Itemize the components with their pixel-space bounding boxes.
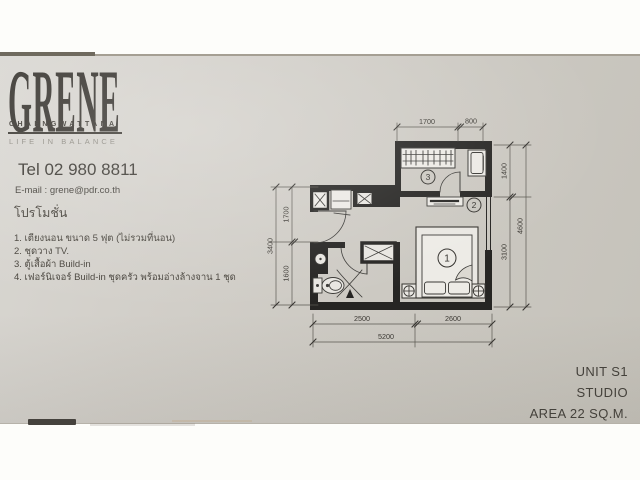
promotion-item-2: 2. ชุดวาง TV. [14,245,264,258]
phone-number: Tel 02 980 8811 [18,160,138,180]
dim-right-lower: 3100 [500,244,509,260]
photo-top-edge [0,52,95,56]
window [485,194,492,253]
svg-text:2: 2 [472,200,477,210]
dim-left-lower: 1600 [282,266,291,282]
svg-text:3: 3 [426,172,431,182]
photo-bottom-edge-mark [172,420,252,422]
dim-top-wardrobe: 1700 [419,117,435,126]
pillow-right [449,282,470,294]
refrigerator [468,150,486,176]
bathroom [313,243,395,298]
unit-name: UNIT S1 [530,361,628,382]
promotion-item-4: 4. เฟอร์นิเจอร์ Build-in ชุดครัว พร้อมอ่… [14,271,264,284]
tv-console [427,197,463,206]
dim-bottom-total: 5200 [378,332,394,341]
nightstand-left [402,284,416,298]
pillow-left [425,282,446,294]
floorplan-photo: GRENE CHAENGWATTANA LIFE IN BALANCE Tel … [0,54,640,424]
unit-type: STUDIO [530,382,628,403]
dim-right-total: 4600 [516,218,525,234]
floor-plan-drawing: 1 2 3 [250,97,560,362]
entrance-door [314,211,346,243]
photo-bottom-edge-mark [28,419,76,425]
dim-top-entry: 800 [465,117,477,126]
svg-text:1: 1 [444,254,450,265]
promotion-item-3: 3. ตู้เสื้อผ้า Build-in [14,258,264,271]
photo-bottom-edge-mark [90,423,195,426]
logo-divider [8,132,122,134]
promotion-section: โปรโมชั่น 1. เตียงนอน ขนาด 5 ฟุต (ไม่รวม… [14,203,264,284]
brand-tagline: LIFE IN BALANCE [9,137,118,146]
dim-left-upper: 1700 [282,207,291,223]
dim-bottom-right: 2600 [445,314,461,323]
marker-tv: 2 [467,198,481,212]
unit-area: AREA 22 SQ.M. [530,403,628,424]
email-address: E-mail : grene@pdr.co.th [15,185,120,196]
unit-info: UNIT S1 STUDIO AREA 22 SQ.M. [530,361,628,424]
bedroom-door [440,172,460,192]
brand-name: GRENE [8,58,80,148]
promotion-item-1: 1. เตียงนอน ขนาด 5 ฟุต (ไม่รวมที่นอน) [14,232,264,245]
promotion-heading: โปรโมชั่น [14,203,264,223]
nightstand-right [472,284,485,298]
brand-logo: GRENE CHAENGWATTANA LIFE IN BALANCE [8,58,138,114]
dim-right-upper: 1400 [500,163,509,179]
marker-wardrobe: 3 [421,170,435,184]
brand-location: CHAENGWATTANA [9,121,118,128]
dim-left-total: 3400 [266,238,275,254]
dim-bottom-left: 2500 [354,314,370,323]
toilet-bowl [322,278,344,294]
wardrobe [401,148,455,168]
